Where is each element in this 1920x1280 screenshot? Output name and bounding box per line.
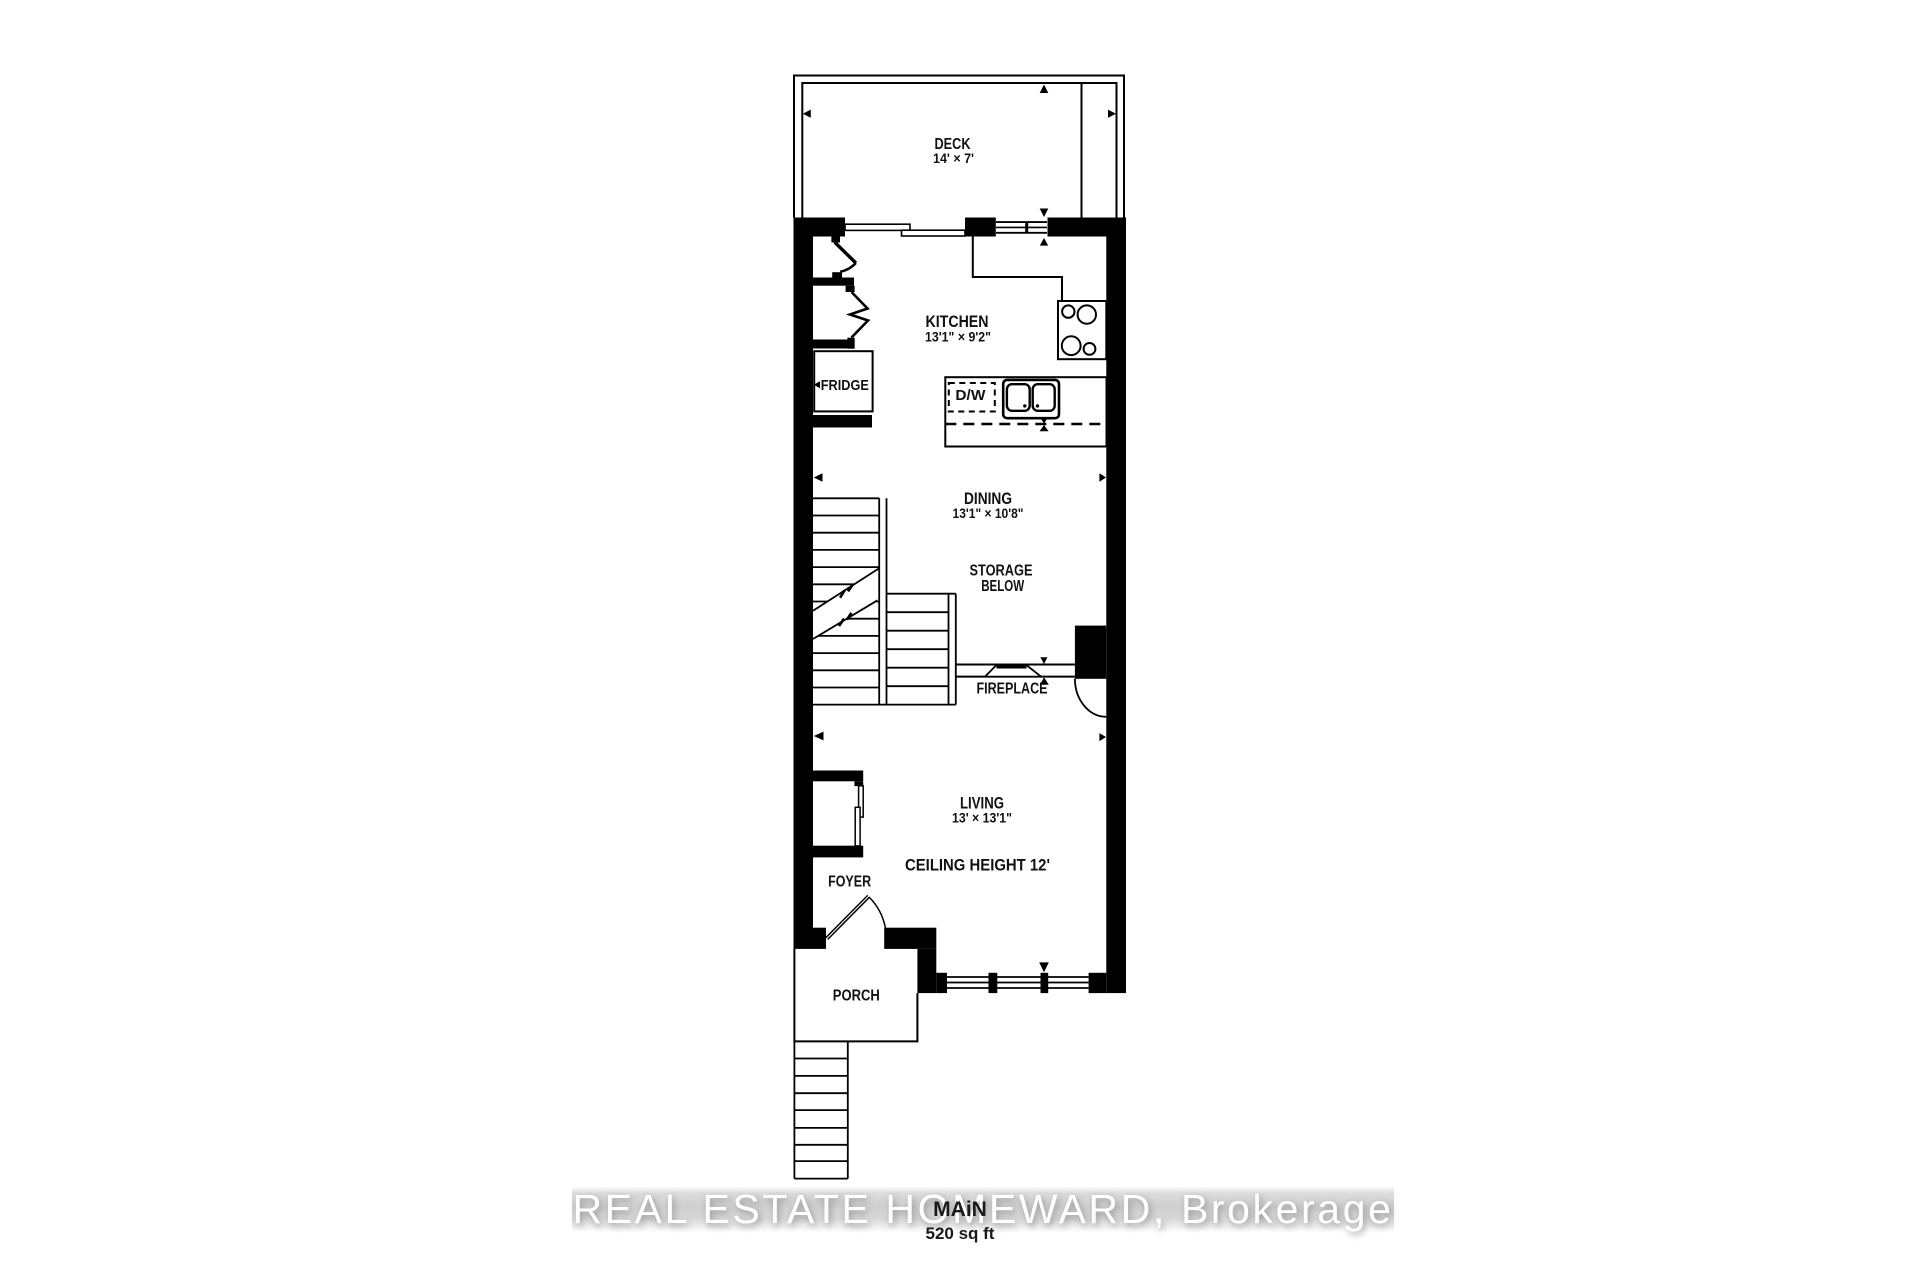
svg-text:13'1" × 9'2": 13'1" × 9'2"	[925, 330, 991, 345]
svg-text:STORAGE: STORAGE	[970, 563, 1033, 580]
svg-text:13' × 13'1": 13' × 13'1"	[952, 811, 1012, 826]
svg-text:FRIDGE: FRIDGE	[821, 377, 869, 394]
svg-text:14' × 7': 14' × 7'	[933, 151, 974, 166]
svg-text:13'1" × 10'8": 13'1" × 10'8"	[953, 506, 1024, 521]
svg-text:D/W: D/W	[955, 387, 986, 404]
svg-text:FOYER: FOYER	[828, 874, 871, 891]
svg-text:KITCHEN: KITCHEN	[926, 312, 989, 331]
svg-text:PORCH: PORCH	[833, 988, 880, 1005]
svg-text:FIREPLACE: FIREPLACE	[977, 681, 1048, 698]
svg-text:CEILING HEIGHT 12': CEILING HEIGHT 12'	[905, 857, 1050, 875]
svg-text:BELOW: BELOW	[981, 578, 1025, 595]
